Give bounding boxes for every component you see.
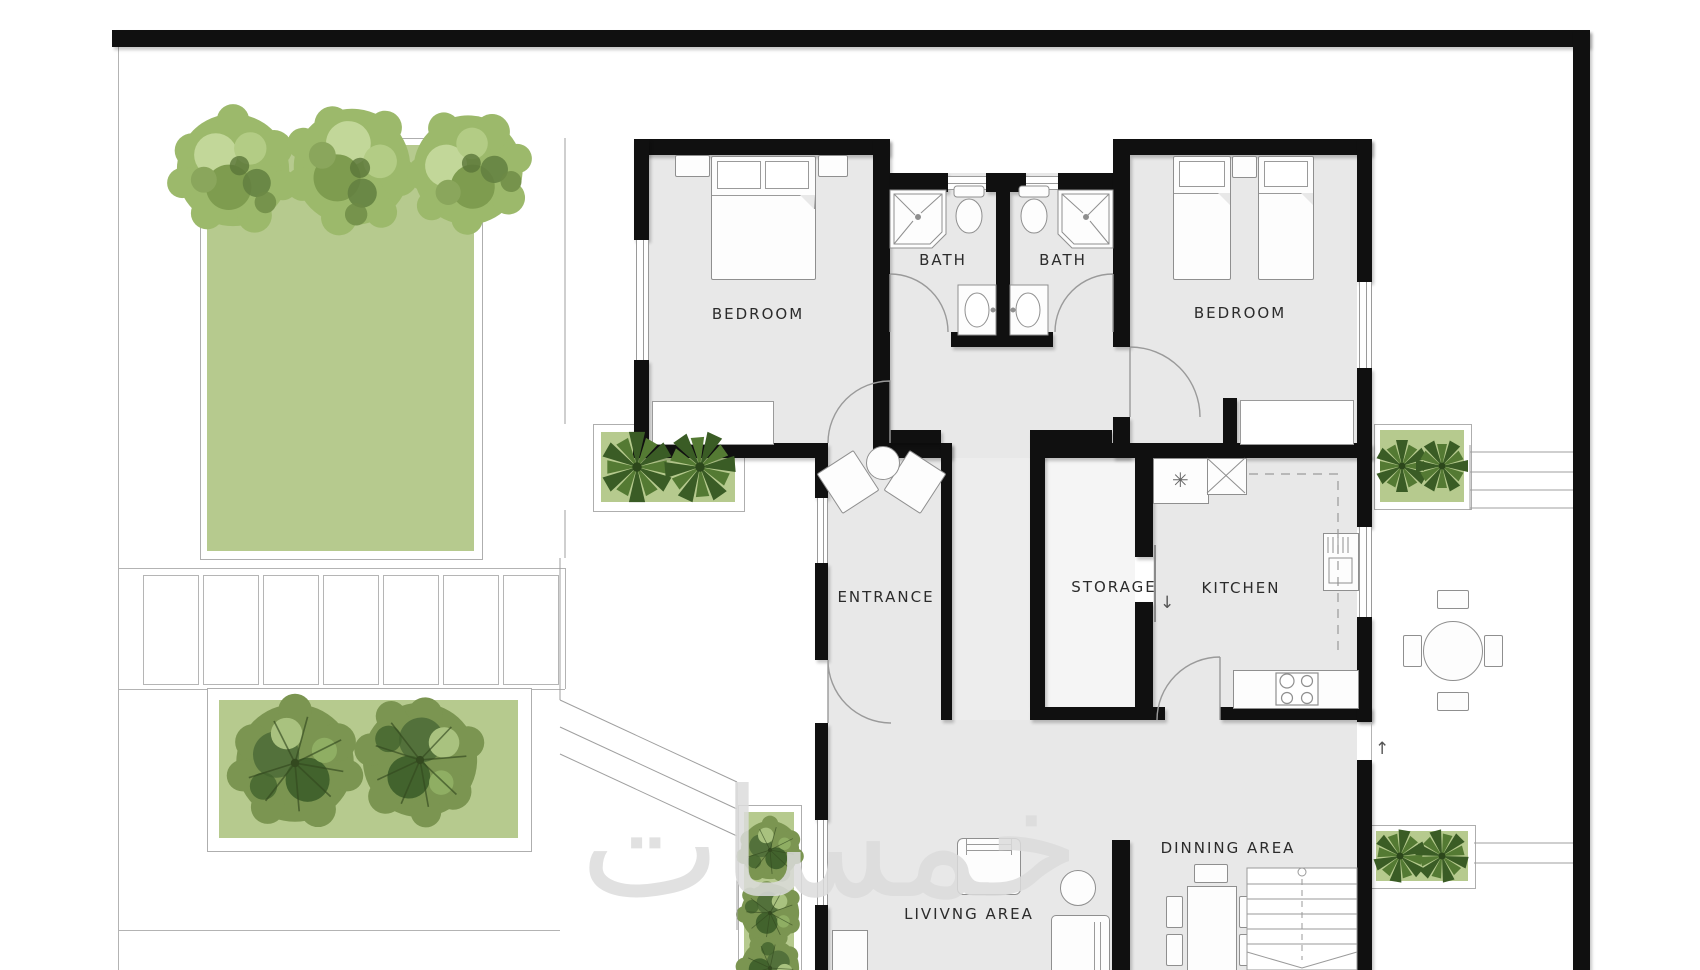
tv-cabinet bbox=[832, 930, 868, 970]
wall bbox=[1113, 139, 1372, 155]
nightstand bbox=[818, 155, 848, 177]
wall bbox=[1135, 602, 1153, 707]
kitchen-door-floor bbox=[1165, 707, 1220, 720]
room-label-bath-right: BATH bbox=[1039, 251, 1087, 269]
corridor-floor bbox=[941, 458, 1030, 720]
bath-setback bbox=[890, 155, 1113, 173]
patio-planter-north bbox=[1380, 430, 1464, 502]
wall bbox=[1357, 617, 1372, 722]
dining-chair bbox=[1166, 896, 1183, 928]
twin-bed bbox=[1258, 156, 1314, 280]
entrance-window bbox=[817, 498, 828, 563]
planter bbox=[219, 700, 518, 838]
kitchen-fridge-unit bbox=[1207, 458, 1247, 495]
patio-step-arrow: ↑ bbox=[1375, 739, 1389, 759]
room-label-storage: STORAGE bbox=[1071, 578, 1156, 596]
site-wall-right bbox=[1573, 30, 1590, 970]
wall bbox=[1058, 173, 1113, 192]
wall bbox=[941, 443, 952, 720]
bedroom-left-window bbox=[636, 240, 649, 360]
bath-right-window bbox=[1026, 176, 1058, 190]
kitchen-window bbox=[1359, 527, 1372, 617]
khamsat-watermark: خمسات bbox=[600, 770, 1080, 920]
room-label-dining: DINNING AREA bbox=[1161, 839, 1296, 857]
wall bbox=[1113, 155, 1130, 347]
wall bbox=[1030, 430, 1112, 443]
dining-chair bbox=[1239, 896, 1256, 928]
wall bbox=[1357, 760, 1372, 970]
wall bbox=[1030, 443, 1372, 458]
wall bbox=[890, 430, 941, 443]
wall bbox=[890, 173, 948, 192]
paving-tile bbox=[383, 575, 439, 685]
bedroom-right-closet bbox=[1240, 400, 1354, 445]
path-edge-line bbox=[565, 568, 566, 689]
wall bbox=[951, 332, 1053, 347]
patio-planter-south bbox=[1376, 831, 1468, 881]
wall bbox=[873, 139, 890, 458]
bedroom-left-closet bbox=[652, 401, 774, 445]
patio-chair bbox=[1484, 635, 1503, 667]
paving-tile bbox=[263, 575, 319, 685]
wall bbox=[986, 173, 1026, 192]
wall bbox=[1357, 455, 1372, 527]
plot-left-boundary-line bbox=[118, 47, 119, 970]
bath-left-window bbox=[948, 176, 986, 190]
patio-chair bbox=[1403, 635, 1422, 667]
wall bbox=[1030, 455, 1045, 707]
room-label-bedroom-left: BEDROOM bbox=[712, 305, 804, 323]
paving-tile bbox=[143, 575, 199, 685]
paving-tile bbox=[443, 575, 499, 685]
room-label-bath-left: BATH bbox=[919, 251, 967, 269]
paving-tile bbox=[503, 575, 559, 685]
kitchen-appliance bbox=[1323, 533, 1359, 591]
room-label-entrance: ENTRANCE bbox=[837, 588, 934, 606]
lawn bbox=[207, 145, 474, 551]
dining-chair bbox=[1194, 864, 1228, 883]
wall bbox=[634, 139, 890, 155]
room-label-bedroom-right: BEDROOM bbox=[1194, 304, 1286, 322]
room-label-kitchen: KITCHEN bbox=[1202, 579, 1281, 597]
driveway-line bbox=[118, 930, 560, 931]
kitchen-sink-counter bbox=[1153, 458, 1209, 504]
nightstand bbox=[675, 155, 710, 177]
paving-row-top-line bbox=[118, 568, 565, 569]
patio-chair bbox=[1437, 692, 1469, 711]
entrance-side-table bbox=[866, 446, 900, 480]
dining-chair bbox=[1239, 934, 1256, 966]
wall bbox=[815, 563, 828, 660]
bedroom-right-window bbox=[1359, 282, 1372, 368]
double-bed bbox=[711, 156, 816, 280]
patio-threshold bbox=[1371, 722, 1372, 760]
wall bbox=[1135, 455, 1153, 557]
bath-divider-wall bbox=[996, 192, 1010, 332]
nightstand bbox=[1232, 156, 1257, 178]
wall bbox=[634, 139, 649, 240]
dining-chair bbox=[1166, 934, 1183, 966]
paving-tile bbox=[203, 575, 259, 685]
twin-bed bbox=[1173, 156, 1231, 280]
floor-plan-canvas: ↓ ↑ ✳ bbox=[0, 0, 1700, 970]
patio-chair bbox=[1437, 590, 1469, 609]
kitchen-south-counter bbox=[1233, 670, 1359, 709]
patio-table bbox=[1423, 621, 1483, 681]
wall bbox=[633, 443, 828, 458]
paving-tile bbox=[323, 575, 379, 685]
wall bbox=[1030, 707, 1165, 720]
dining-table bbox=[1187, 886, 1237, 970]
wall bbox=[1357, 139, 1372, 282]
living-dining-divider bbox=[1112, 840, 1130, 970]
site-wall-top bbox=[112, 30, 1590, 47]
